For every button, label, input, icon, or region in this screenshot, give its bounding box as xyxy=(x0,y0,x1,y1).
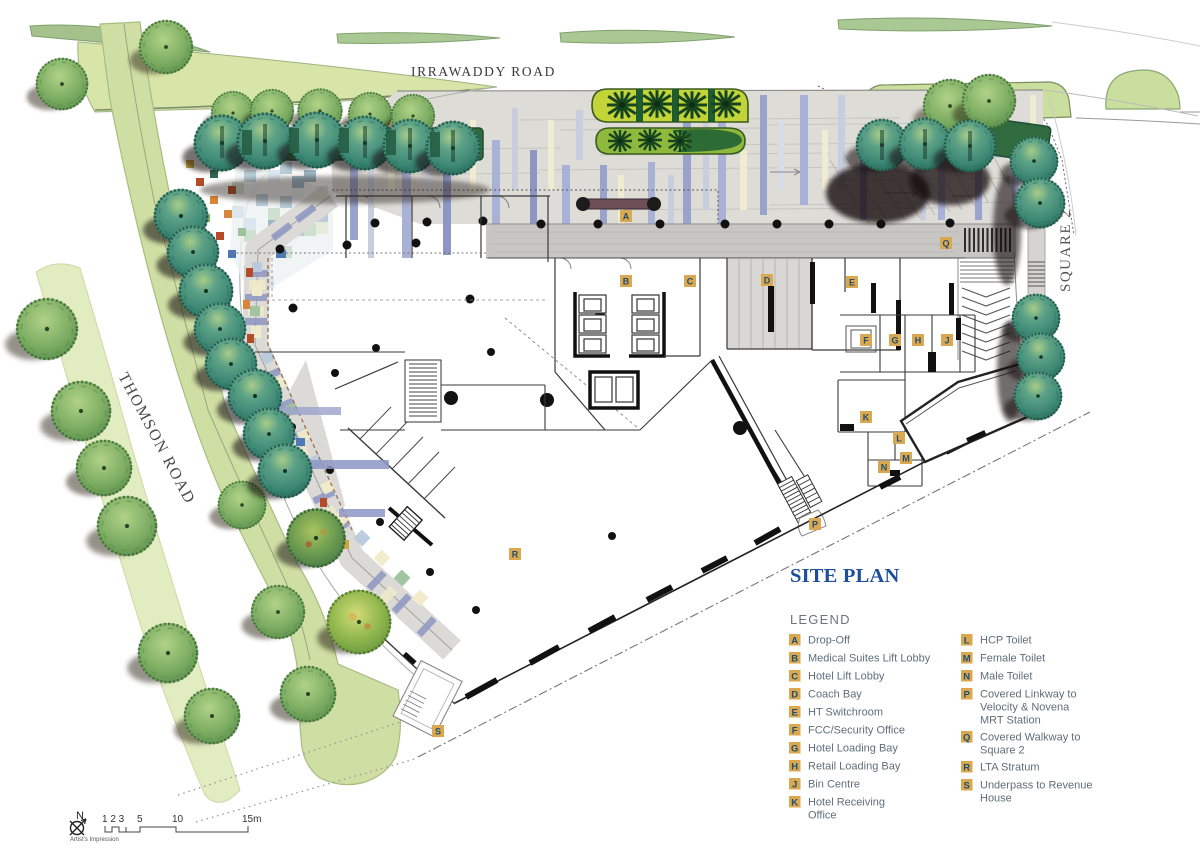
svg-text:HCP Toilet: HCP Toilet xyxy=(980,635,1032,647)
svg-text:B: B xyxy=(623,277,630,287)
svg-text:IRRAWADDY ROAD: IRRAWADDY ROAD xyxy=(411,64,556,79)
svg-text:K: K xyxy=(791,798,798,809)
svg-text:5: 5 xyxy=(137,814,143,825)
svg-text:D: D xyxy=(764,276,771,286)
svg-text:SQUARE 2: SQUARE 2 xyxy=(1058,209,1074,292)
svg-text:Medical Suites Lift Lobby: Medical Suites Lift Lobby xyxy=(808,653,931,665)
svg-text:B: B xyxy=(791,654,798,665)
svg-text:R: R xyxy=(512,550,519,560)
svg-text:A: A xyxy=(791,636,798,647)
svg-text:H: H xyxy=(915,336,922,346)
svg-text:Hotel Loading Bay: Hotel Loading Bay xyxy=(808,743,898,755)
svg-text:G: G xyxy=(791,744,798,755)
svg-text:F: F xyxy=(792,726,798,737)
svg-text:D: D xyxy=(791,690,798,701)
svg-text:Coach Bay: Coach Bay xyxy=(808,689,862,701)
svg-text:1 2 3: 1 2 3 xyxy=(102,814,125,825)
svg-text:C: C xyxy=(687,277,694,287)
svg-text:Covered Linkway to: Covered Linkway to xyxy=(980,689,1077,701)
svg-text:Covered Walkway to: Covered Walkway to xyxy=(980,732,1080,744)
svg-text:Velocity & Novena: Velocity & Novena xyxy=(980,702,1070,714)
svg-text:P: P xyxy=(812,520,818,530)
svg-text:G: G xyxy=(891,336,898,346)
svg-text:N: N xyxy=(963,672,970,683)
svg-text:Bin Centre: Bin Centre xyxy=(808,779,860,791)
svg-text:LTA Stratum: LTA Stratum xyxy=(980,762,1040,774)
svg-text:Female Toilet: Female Toilet xyxy=(980,653,1045,665)
svg-text:R: R xyxy=(963,763,970,774)
svg-text:N: N xyxy=(76,810,84,822)
svg-text:LEGEND: LEGEND xyxy=(790,612,851,627)
svg-text:Q: Q xyxy=(963,733,970,744)
svg-text:SITE PLAN: SITE PLAN xyxy=(790,565,899,587)
svg-text:F: F xyxy=(863,336,869,346)
svg-text:Square 2: Square 2 xyxy=(980,745,1025,757)
svg-text:L: L xyxy=(964,636,970,647)
svg-text:15m: 15m xyxy=(242,814,261,825)
svg-text:P: P xyxy=(964,690,971,701)
svg-text:Q: Q xyxy=(942,239,949,249)
svg-text:K: K xyxy=(863,413,870,423)
svg-text:FCC/Security Office: FCC/Security Office xyxy=(808,725,905,737)
svg-text:Underpass to Revenue: Underpass to Revenue xyxy=(980,780,1093,792)
svg-text:House: House xyxy=(980,793,1012,805)
svg-text:Office: Office xyxy=(808,810,837,822)
svg-text:Drop-Off: Drop-Off xyxy=(808,635,851,647)
svg-text:Male Toilet: Male Toilet xyxy=(980,671,1032,683)
svg-text:E: E xyxy=(792,708,798,719)
svg-text:L: L xyxy=(896,434,902,444)
svg-text:HT Switchroom: HT Switchroom xyxy=(808,707,883,719)
svg-text:N: N xyxy=(881,463,888,473)
svg-text:J: J xyxy=(792,780,797,791)
svg-text:J: J xyxy=(944,336,949,346)
svg-text:H: H xyxy=(791,762,798,773)
svg-text:S: S xyxy=(964,781,970,792)
svg-text:M: M xyxy=(963,654,971,665)
svg-text:Hotel Receiving: Hotel Receiving xyxy=(808,797,885,809)
svg-text:M: M xyxy=(902,454,910,464)
svg-text:10: 10 xyxy=(172,814,184,825)
svg-text:MRT Station: MRT Station xyxy=(980,715,1041,727)
svg-text:C: C xyxy=(791,672,798,683)
svg-text:E: E xyxy=(849,278,855,288)
svg-text:S: S xyxy=(435,727,441,737)
svg-text:Hotel Lift Lobby: Hotel Lift Lobby xyxy=(808,671,885,683)
svg-text:Retail Loading Bay: Retail Loading Bay xyxy=(808,761,901,773)
svg-text:Artist's Impression: Artist's Impression xyxy=(70,837,119,843)
svg-text:A: A xyxy=(623,212,630,222)
